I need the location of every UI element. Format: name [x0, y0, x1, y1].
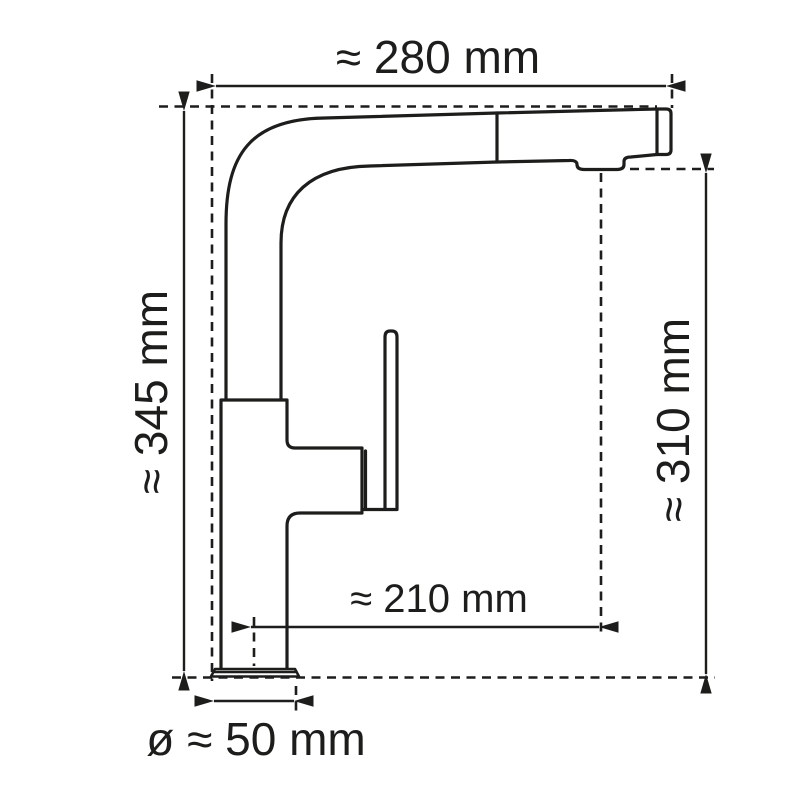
dim-label-spout-width: ≈ 280 mm: [336, 31, 540, 83]
dim-label-base-diameter: ø ≈ 50 mm: [146, 713, 366, 765]
dim-label-outlet-reach: ≈ 210 mm: [350, 577, 528, 621]
diagram-page: ≈ 280 mm ≈ 345 mm ≈ 310 mm ≈ 210 mm ø ≈ …: [0, 0, 800, 800]
faucet-dimension-diagram: ≈ 280 mm ≈ 345 mm ≈ 310 mm ≈ 210 mm ø ≈ …: [0, 0, 800, 800]
base-plate: [211, 669, 299, 677]
spout-outline: [226, 109, 671, 399]
handle-lever: [362, 331, 397, 510]
dim-label-outlet-height: ≈ 310 mm: [647, 318, 699, 522]
dim-outlet-height: ≈ 310 mm: [630, 169, 714, 674]
dim-label-total-height: ≈ 345 mm: [125, 290, 177, 494]
dim-base-diameter: ø ≈ 50 mm: [146, 686, 366, 765]
dim-outlet-reach: ≈ 210 mm: [251, 173, 601, 666]
